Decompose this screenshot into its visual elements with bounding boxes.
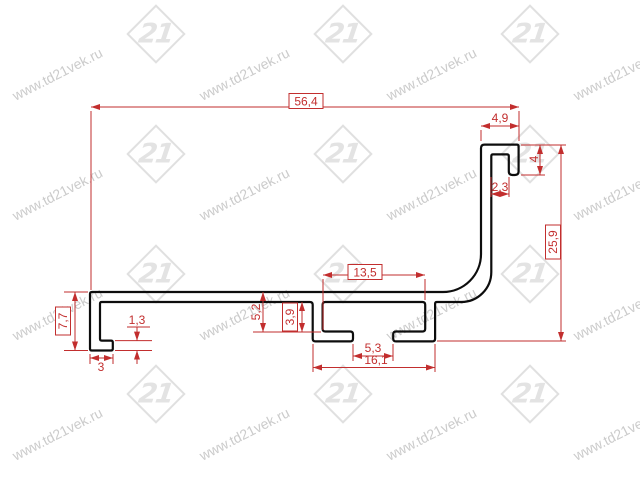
profile-outline (90, 145, 519, 351)
dimension-left-foot-width: 3 (90, 354, 113, 374)
dim-label: 3 (98, 360, 105, 374)
dim-label: 16,1 (364, 353, 388, 367)
dim-label: 5,2 (249, 303, 263, 320)
dim-label: 3,9 (283, 308, 297, 325)
dim-label: 4,9 (492, 111, 509, 125)
dimension-left-end-height: 7,7 (56, 292, 89, 351)
dim-label: 56,4 (294, 95, 318, 109)
profile-drawing: 56,4 4,9 4 2,3 25,9 (0, 0, 640, 480)
dimension-overall-height: 25,9 (437, 145, 566, 341)
dimension-left-foot-thickness: 1,3 (115, 313, 152, 364)
dim-label: 25,9 (546, 230, 560, 254)
dim-label: 4 (527, 155, 541, 162)
dim-label: 7,7 (56, 312, 70, 329)
dimension-channel-depth-inner: 3,9 (283, 302, 303, 332)
drawing-page: 212121212121212121212121www.td21vek.ruww… (0, 0, 640, 480)
dim-label: 13,5 (353, 266, 377, 280)
dim-label: 2,3 (492, 180, 509, 194)
dim-label: 1,3 (129, 313, 146, 327)
dimension-channel-inner-width: 13,5 (323, 265, 425, 331)
dimension-hook-lip-height: 4 (521, 145, 566, 175)
dimension-hook-slot-opening: 2,3 (491, 177, 509, 197)
dimension-overall-width: 56,4 (91, 94, 519, 291)
dimension-hook-width: 4,9 (481, 111, 519, 141)
